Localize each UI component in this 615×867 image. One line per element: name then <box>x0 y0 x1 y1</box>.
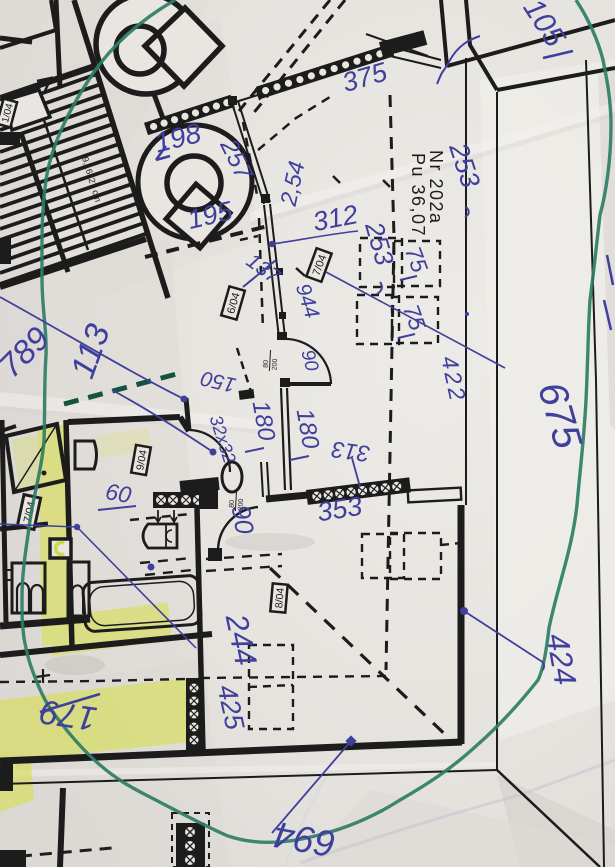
svg-text:60: 60 <box>104 478 134 508</box>
svg-text:Pu 36,07: Pu 36,07 <box>408 153 428 237</box>
svg-text:179: 179 <box>38 692 100 738</box>
svg-text:313: 313 <box>330 436 372 467</box>
svg-text:200: 200 <box>271 358 279 370</box>
svg-text:Nr 202a: Nr 202a <box>426 150 446 225</box>
svg-text:90: 90 <box>226 503 261 537</box>
svg-text:80: 80 <box>263 360 270 368</box>
svg-text:8/04: 8/04 <box>273 587 287 609</box>
